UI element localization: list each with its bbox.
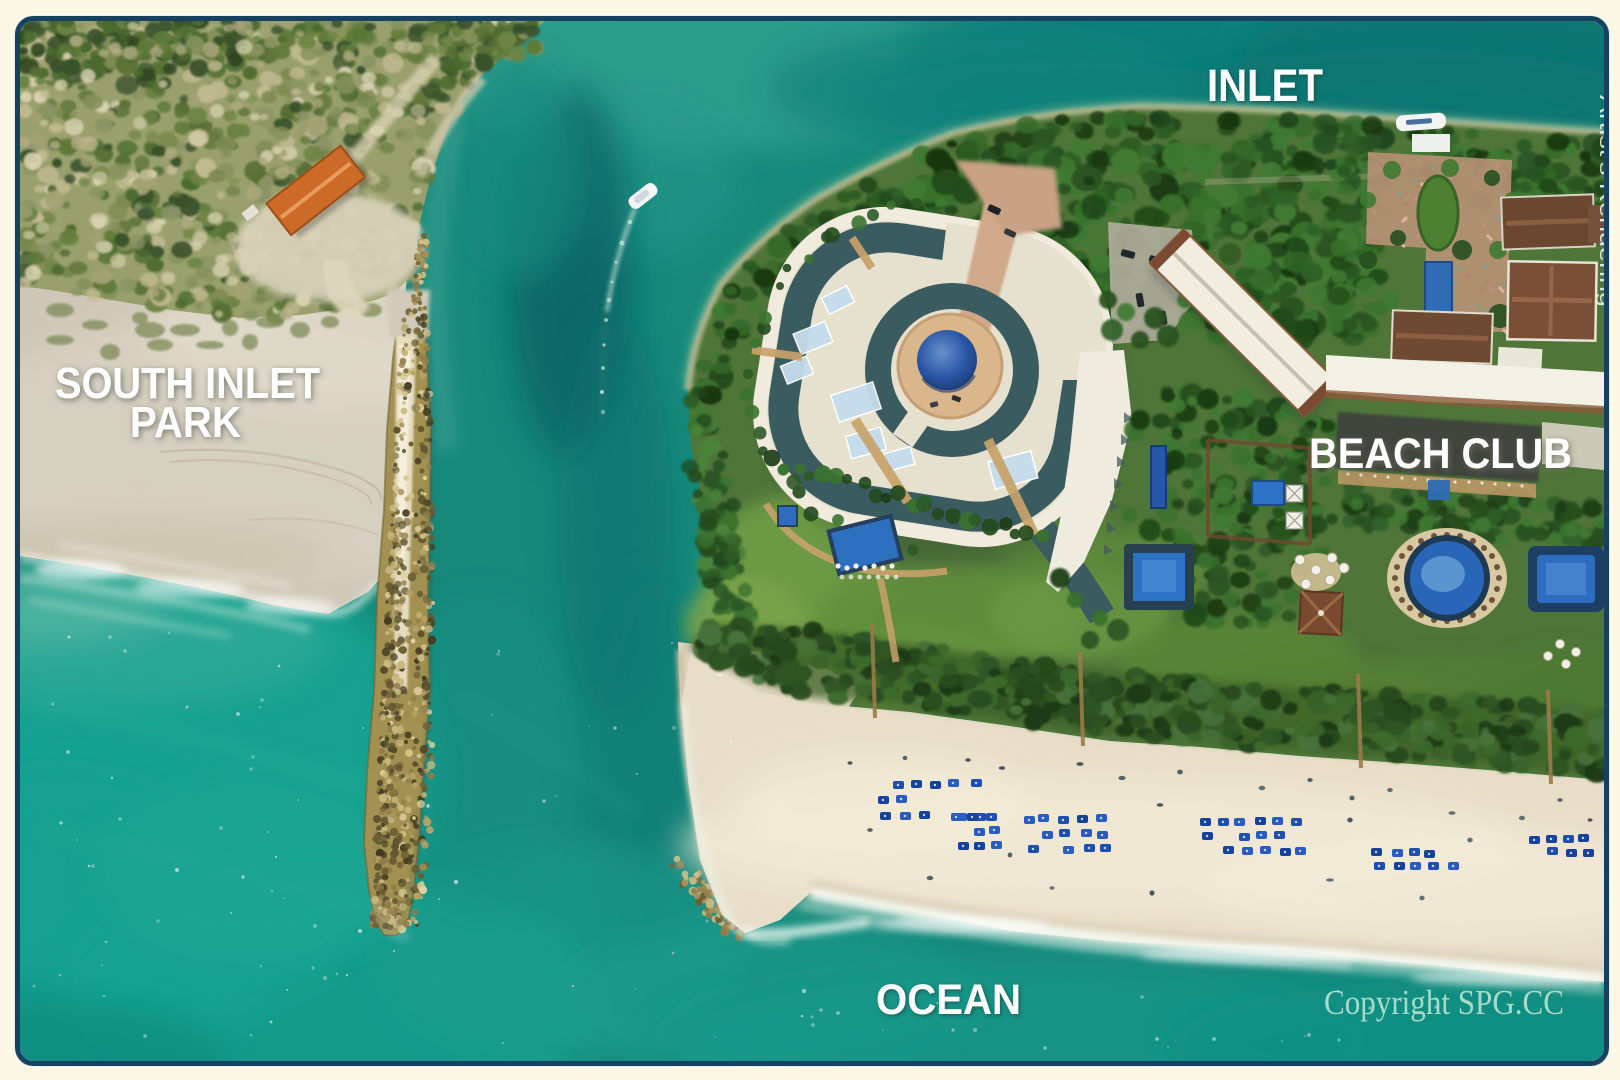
svg-text:BEACH CLUB: BEACH CLUB [1309, 430, 1572, 478]
svg-text:PARK: PARK [130, 398, 241, 447]
svg-text:OCEAN: OCEAN [876, 976, 1021, 1024]
svg-text:Copyright SPG.CC: Copyright SPG.CC [1324, 983, 1564, 1022]
svg-text:INLET: INLET [1207, 60, 1323, 111]
